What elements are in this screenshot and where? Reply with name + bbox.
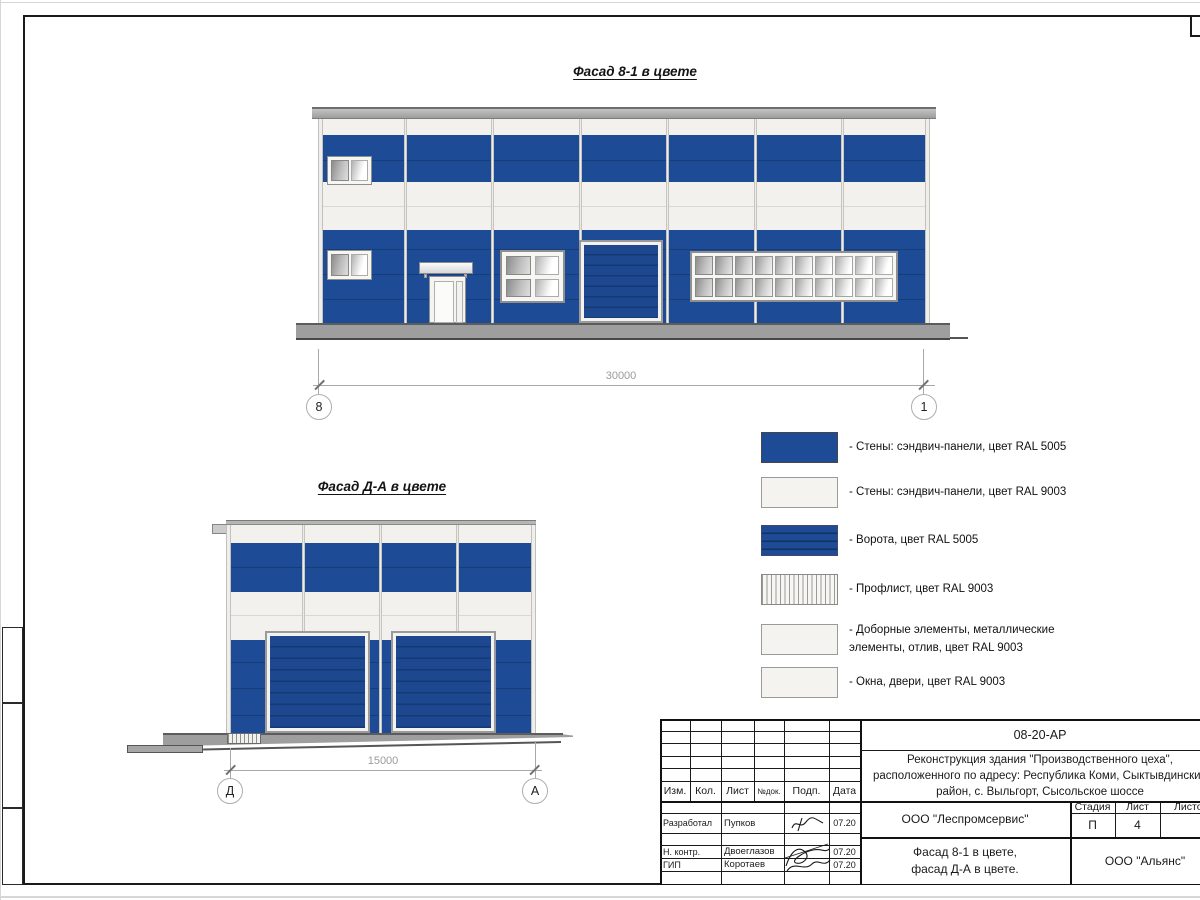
axis-marker-8: 8 — [306, 394, 332, 420]
window-pane — [855, 256, 873, 275]
paper-edge-left — [0, 0, 1, 900]
door-leaf-main — [434, 281, 454, 323]
window-pane — [795, 278, 813, 297]
facade2-length-dim: 15000 — [333, 755, 433, 767]
facade2-profiled-sheet-strip — [227, 733, 261, 744]
window-pane — [775, 278, 793, 297]
tb-name-korotaev: Коротаев — [721, 858, 784, 871]
tb-date-3: 07.20 — [829, 858, 860, 871]
tb-col-izm: Изм. — [660, 781, 690, 801]
legend-label: - Окна, двери, цвет RAL 9003 — [849, 674, 1005, 692]
legend-label: - Ворота, цвет RAL 5005 — [849, 532, 978, 550]
signature-dvoeglazov-korotaev — [782, 840, 832, 876]
facade1-window-small-upper — [327, 156, 372, 185]
tb-date-2: 07.20 — [829, 845, 860, 858]
legend-item-trim: - Доборные элементы, металлическиеэлемен… — [761, 622, 1055, 658]
tb-name-pupkov: Пупков — [721, 813, 784, 833]
window-pane — [875, 278, 893, 297]
tb-doc-code: 08-20-АР — [860, 719, 1200, 750]
tb-project-description: Реконструкция здания "Производственного … — [860, 750, 1200, 801]
facade1-band-white-mid — [318, 182, 930, 230]
facade1-band-blue-upper — [318, 135, 930, 182]
legend-label: - Профлист, цвет RAL 9003 — [849, 581, 993, 599]
axis-label: 1 — [921, 400, 928, 414]
corner-stamp-line-v — [1190, 15, 1192, 36]
tb-col-kol: Кол. — [690, 781, 721, 801]
axis-marker-a: А — [522, 778, 548, 804]
paper-edge-bottom — [0, 896, 1200, 898]
tb-role-ncontrol: Н. контр. — [660, 845, 721, 858]
facade1-canopy-post-left — [424, 274, 427, 278]
dimension-line — [224, 770, 542, 771]
tb-col-data: Дата — [829, 781, 860, 801]
window-pane — [506, 279, 531, 298]
frame-left — [23, 15, 25, 885]
facade2-ramp-top-edge — [163, 733, 563, 735]
facade1-corner-trim-left — [318, 119, 323, 323]
facade1-panel-joint — [404, 119, 407, 323]
tb-name-dvoeglazov: Двоеглазов — [721, 845, 784, 858]
extension-line — [535, 741, 536, 779]
facade1-ground-line-ext — [950, 337, 968, 339]
legend-label: - Стены: сэндвич-панели, цвет RAL 9003 — [849, 484, 1066, 502]
tb-col-list: Лист — [721, 781, 754, 801]
tb-role-developed: Разработал — [660, 813, 721, 833]
tb-lists-value — [1160, 813, 1200, 837]
facade1-title: Фасад 8-1 в цвете — [485, 64, 785, 79]
facade1-gate — [579, 240, 663, 323]
tb-col-podp: Подп. — [784, 781, 829, 801]
window-pane — [506, 256, 531, 275]
facade1-corner-trim-right — [925, 119, 930, 323]
margin-box-1 — [2, 627, 23, 703]
legend-item-windows-doors: - Окна, двери, цвет RAL 9003 — [761, 667, 1005, 698]
frame-top — [23, 15, 1200, 17]
facade1-ground — [296, 323, 950, 340]
window-pane — [715, 256, 733, 275]
facade2-title: Фасад Д-А в цвете — [232, 479, 532, 494]
axis-label: 8 — [316, 400, 323, 414]
window-pane — [815, 256, 833, 275]
axis-marker-d: Д — [217, 778, 243, 804]
tb-contractor: ООО "Альянс" — [1070, 837, 1200, 885]
legend-swatch-profiled-sheet — [761, 574, 838, 605]
window-pane — [855, 278, 873, 297]
window-pane — [695, 278, 713, 297]
facade1-panel-joint — [666, 119, 669, 323]
tb-list-value: 4 — [1115, 813, 1160, 837]
facade2-corner-trim-right — [531, 525, 536, 733]
window-pane — [795, 256, 813, 275]
tb-stage-value: П — [1070, 813, 1115, 837]
axis-marker-1: 1 — [911, 394, 937, 420]
window-pane — [755, 278, 773, 297]
tb-list-label: Лист — [1115, 801, 1160, 813]
corner-stamp-line-h — [1190, 35, 1200, 37]
window-pane — [815, 278, 833, 297]
window-pane — [331, 254, 349, 276]
window-pane — [351, 160, 369, 181]
facade1-door-canopy — [419, 262, 473, 274]
window-pane — [755, 256, 773, 275]
signature-pupkov — [787, 815, 829, 833]
facade1-band-white-top — [318, 119, 930, 135]
tb-date-1: 07.20 — [829, 813, 860, 833]
facade1-parapet — [312, 107, 936, 119]
legend-swatch-windows-doors — [761, 667, 838, 698]
drawing-sheet: Фасад 8-1 в цвете — [0, 0, 1200, 900]
window-pane — [835, 256, 853, 275]
margin-box-3 — [2, 808, 23, 885]
facade2-panel-joint — [379, 525, 382, 733]
extension-line — [923, 349, 924, 394]
tb-lists-label: Листов — [1160, 801, 1200, 813]
facade1-window-ribbon — [690, 251, 898, 302]
facade2-corner-trim-left — [226, 525, 231, 733]
door-leaf-side — [456, 281, 463, 323]
legend-swatch-trim — [761, 624, 838, 655]
title-block: Изм. Кол. Лист №док. Подп. Дата Разработ… — [660, 719, 1200, 885]
legend-swatch-wall-blue — [761, 432, 838, 463]
facade1-window-small-lower — [327, 250, 372, 280]
facade2-gate-right — [391, 631, 496, 733]
facade1-window-4pane — [500, 250, 565, 303]
axis-label: А — [531, 784, 539, 798]
facade2-gate-left — [265, 631, 370, 733]
extension-line — [230, 748, 231, 779]
window-pane — [715, 278, 733, 297]
window-pane — [775, 256, 793, 275]
gate-slats — [396, 636, 491, 728]
window-pane — [331, 160, 349, 181]
paper-edge-top — [0, 2, 1200, 3]
legend-item-profiled-sheet: - Профлист, цвет RAL 9003 — [761, 574, 993, 605]
tb-stage-label: Стадия — [1070, 801, 1115, 813]
window-pane — [351, 254, 369, 276]
facade1-panel-joint — [491, 119, 494, 323]
tb-role-gip: ГИП — [660, 858, 721, 871]
legend-item-gate: - Ворота, цвет RAL 5005 — [761, 525, 978, 556]
window-pane — [695, 256, 713, 275]
facade1-entrance-door — [429, 276, 466, 323]
legend-swatch-gate-blue — [761, 525, 838, 556]
window-pane — [735, 278, 753, 297]
window-pane — [735, 256, 753, 275]
window-pane — [535, 256, 560, 275]
legend-label: - Доборные элементы, металлическиеэлемен… — [849, 622, 1055, 658]
axis-label: Д — [226, 784, 234, 798]
tb-sheet-title: Фасад 8-1 в цвете, фасад Д-А в цвете. — [860, 837, 1070, 885]
gate-slats — [584, 245, 658, 318]
facade2-ground-step — [127, 745, 203, 753]
window-pane — [535, 279, 560, 298]
facade1-length-dim: 30000 — [571, 370, 671, 382]
tb-organization: ООО "Леспромсервис" — [860, 801, 1070, 837]
legend-swatch-wall-white — [761, 477, 838, 508]
margin-box-2 — [2, 703, 23, 808]
legend-label: - Стены: сэндвич-панели, цвет RAL 5005 — [849, 439, 1066, 457]
extension-line — [318, 349, 319, 394]
gate-slats — [270, 636, 365, 728]
legend-item-wall-white: - Стены: сэндвич-панели, цвет RAL 9003 — [761, 477, 1066, 508]
tb-col-ndok: №док. — [754, 781, 784, 801]
window-pane — [875, 256, 893, 275]
dimension-line — [313, 385, 935, 386]
legend-item-wall-blue: - Стены: сэндвич-панели, цвет RAL 5005 — [761, 432, 1066, 463]
window-pane — [835, 278, 853, 297]
